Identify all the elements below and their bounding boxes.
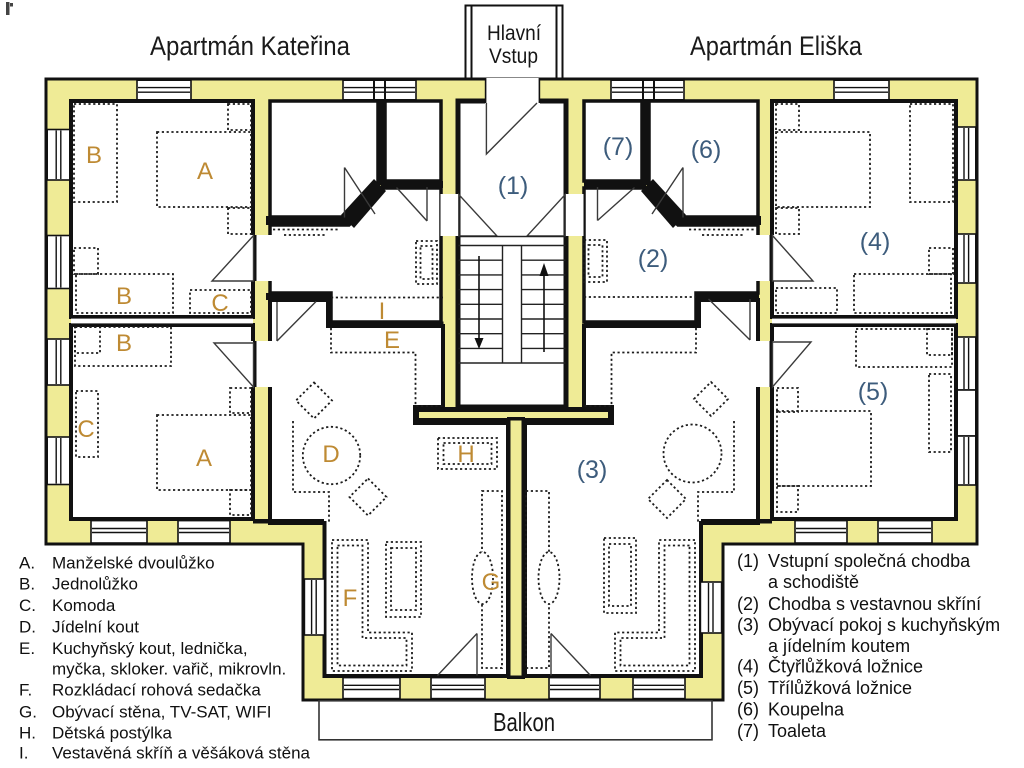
- svg-text:A: A: [196, 445, 212, 472]
- svg-text:(3): (3): [577, 456, 608, 484]
- svg-text:Balkon: Balkon: [493, 707, 555, 737]
- svg-text:(5): (5): [858, 378, 889, 406]
- svg-text:(1): (1): [498, 172, 529, 200]
- svg-text:Manželské dvoulůžko: Manželské dvoulůžko: [52, 554, 215, 573]
- svg-text:Apartmán Eliška: Apartmán Eliška: [690, 31, 862, 61]
- svg-text:E.: E.: [19, 639, 35, 658]
- svg-text:C.: C.: [19, 596, 36, 615]
- svg-text:Jídelní kout: Jídelní kout: [52, 618, 139, 637]
- svg-text:Hlavní: Hlavní: [487, 22, 541, 45]
- svg-text:a jídelním koutem: a jídelním koutem: [768, 636, 910, 656]
- svg-text:Chodba s vestavnou skříní: Chodba s vestavnou skříní: [768, 594, 981, 614]
- svg-text:Vestavěná skříň a věšáková stě: Vestavěná skříň a věšáková stěna: [52, 744, 311, 763]
- svg-text:Vstupní společná chodba: Vstupní společná chodba: [768, 551, 971, 571]
- svg-text:C: C: [211, 290, 228, 317]
- svg-text:B: B: [86, 142, 102, 169]
- svg-text:B: B: [116, 330, 132, 357]
- svg-text:B.: B.: [19, 575, 35, 594]
- svg-text:a schodiště: a schodiště: [768, 572, 859, 592]
- svg-text:Čtyřlůžková ložnice: Čtyřlůžková ložnice: [768, 656, 923, 677]
- svg-text:Dětská postýlka: Dětská postýlka: [52, 724, 173, 743]
- svg-text:(4): (4): [860, 228, 891, 256]
- svg-text:(2): (2): [737, 594, 759, 614]
- svg-text:G.: G.: [19, 703, 37, 722]
- svg-text:I.: I.: [19, 744, 28, 763]
- svg-text:(6): (6): [691, 136, 722, 164]
- svg-text:H: H: [457, 441, 474, 468]
- svg-text:Jednolůžko: Jednolůžko: [52, 575, 138, 594]
- svg-text:C: C: [77, 416, 94, 443]
- svg-text:(2): (2): [638, 245, 669, 273]
- svg-text:(7): (7): [737, 721, 759, 741]
- svg-text:(4): (4): [737, 657, 759, 677]
- svg-text:Obývací stěna, TV-SAT, WIFI: Obývací stěna, TV-SAT, WIFI: [52, 703, 272, 722]
- svg-text:F: F: [343, 585, 358, 612]
- svg-text:Rozkládací rohová sedačka: Rozkládací rohová sedačka: [52, 681, 261, 700]
- svg-text:Toaleta: Toaleta: [768, 721, 827, 741]
- svg-text:E: E: [384, 327, 400, 354]
- svg-text:Kuchyňský kout, lednička,: Kuchyňský kout, lednička,: [52, 639, 248, 658]
- svg-text:Apartmán Kateřina: Apartmán Kateřina: [150, 31, 350, 61]
- svg-text:(7): (7): [603, 133, 634, 161]
- svg-text:(6): (6): [737, 700, 759, 720]
- svg-text:A: A: [197, 158, 213, 185]
- svg-text:Komoda: Komoda: [52, 596, 116, 615]
- svg-text:Vstup: Vstup: [489, 45, 538, 68]
- svg-text:(5): (5): [737, 678, 759, 698]
- svg-text:H.: H.: [19, 724, 36, 743]
- svg-text:(3): (3): [737, 615, 759, 635]
- svg-text:A.: A.: [19, 554, 35, 573]
- svg-text:F.: F.: [19, 681, 32, 700]
- svg-text:Třílůžková ložnice: Třílůžková ložnice: [768, 678, 912, 698]
- svg-text:(1): (1): [737, 551, 759, 571]
- svg-text:D.: D.: [19, 618, 36, 637]
- svg-text:Koupelna: Koupelna: [768, 700, 845, 720]
- svg-text:Obývací pokoj s kuchyňským: Obývací pokoj s kuchyňským: [768, 615, 1000, 635]
- svg-text:B: B: [116, 283, 132, 310]
- svg-text:D: D: [322, 441, 339, 468]
- svg-text:G: G: [482, 569, 501, 596]
- svg-text:myčka, skloker. vařič, mikrovl: myčka, skloker. vařič, mikrovln.: [52, 660, 286, 679]
- svg-text:I: I: [379, 298, 386, 325]
